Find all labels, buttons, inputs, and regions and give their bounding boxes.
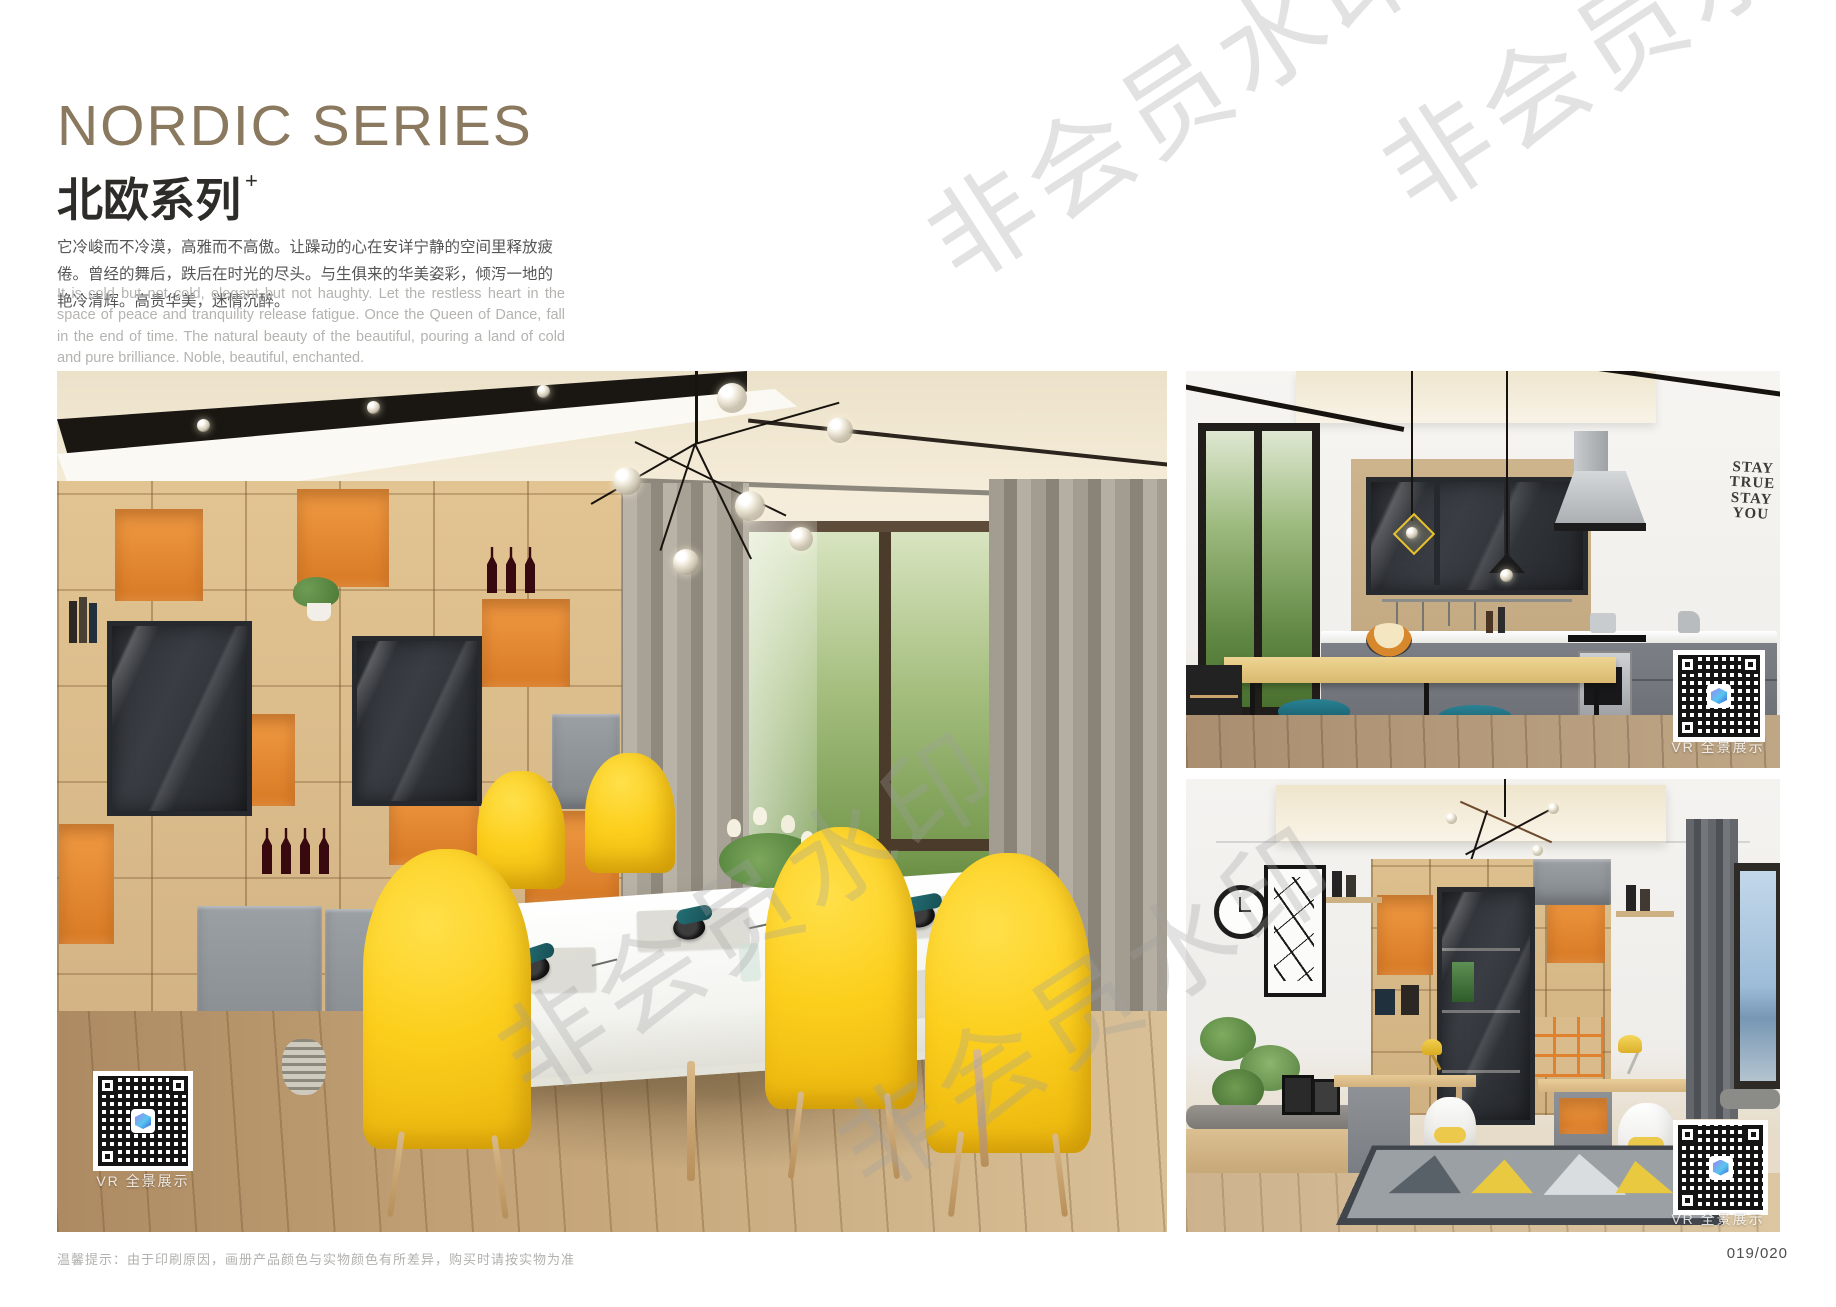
tulip [727,819,741,837]
shelf-board [1190,695,1238,698]
shelf-orange-cell [59,824,114,944]
book [1346,875,1356,897]
footer-disclaimer: 温馨提示：由于印刷原因，画册产品颜色与实物颜色有所差异，购买时请按实物为准 [57,1249,575,1268]
chandelier-arm [695,402,840,445]
decal-line: YOU [1724,506,1777,524]
watermark-text: 非会员水印 [893,0,1455,312]
page-title: NORDIC SERIES [57,98,533,155]
study-window-view [1740,871,1776,1081]
page-number: 019/020 [1727,1245,1788,1262]
desk-lamp [1616,1035,1650,1069]
kettle [1678,611,1700,633]
chandelier-stem [695,371,698,443]
book [79,597,87,643]
spotlight [367,401,380,414]
chandelier-bulb [789,527,813,551]
glass-display-cabinet [1437,887,1535,1125]
book [1640,889,1650,911]
fruit-bowl [1366,623,1412,657]
cabinet-art [1452,962,1474,1002]
pendant-cord [1506,371,1508,557]
spotlight [537,385,550,398]
page-subtitle: 北欧系列+ [57,170,258,223]
hanging-utensil [1422,602,1424,632]
gray-cabinet-door [1533,859,1611,905]
lamp-shade [1422,1039,1442,1055]
dining-room-photo: VR 全景展示 [57,371,1167,1232]
chandelier-bulb [717,383,747,413]
vr-panorama-label: VR 全景展示 [1668,1209,1768,1229]
book [1401,985,1419,1015]
pendant-bulb [1500,569,1513,582]
utensil-rail [1382,599,1572,602]
wine-bottles [262,828,329,874]
desk-left-top [1334,1075,1476,1087]
qr-eye [1744,1125,1763,1144]
qr-eye [98,1147,117,1166]
flower-vase [738,943,761,982]
qr-eye [1678,655,1697,674]
chandelier-arm [591,443,696,505]
gas-cooktop [1568,635,1646,642]
qr-eye [98,1076,117,1095]
desk-lamp [1422,1039,1452,1069]
abstract-art-frame [1264,865,1326,997]
tulip [781,815,795,833]
window-seat-cushion [1720,1089,1780,1109]
sputnik-chandelier [577,371,907,631]
qr-pattern [1678,1125,1763,1210]
glass-shelf [1442,1010,1520,1013]
subtitle-plus: + [245,168,258,193]
pendant-bulb [1406,527,1418,539]
dining-chair-near [363,849,531,1149]
floating-shelf [1616,911,1674,917]
glass-shelf [1442,948,1520,951]
description-english: It is cold but not cold, elegant but not… [57,284,565,370]
shelf-orange-cell [297,489,389,587]
vr-panorama-label: VR 全景展示 [87,1171,199,1191]
hood-duct [1574,431,1608,477]
qr-eye [1678,1125,1697,1144]
geometric-rug [1336,1145,1724,1225]
lamp-arm [1627,1050,1640,1075]
pedestal-orange-box [1559,1098,1607,1134]
qr-code [1673,650,1765,742]
qr-code [1673,1120,1768,1215]
bottle [1486,611,1493,633]
chandelier-stem [1504,779,1506,817]
shelf-orange-cell [115,509,203,601]
book [1332,871,1342,897]
book [89,603,97,643]
wall-clock [1214,885,1268,939]
desk-right-top [1538,1079,1708,1092]
orange-cubby-grid [1529,1017,1603,1077]
plant-pot [307,603,331,621]
chandelier-bulb [1446,813,1457,824]
rug-triangle [1542,1154,1626,1195]
book [69,601,77,643]
wine-bottles [487,547,535,593]
book [1626,885,1636,911]
qr-eye [1741,655,1760,674]
chandelier-bulb [1548,803,1559,814]
table-leg [687,1061,695,1181]
vr-panorama-label: VR 全景展示 [1668,737,1768,757]
kitchen-photo: STAY TRUE STAY YOU VR 全景展示 [1186,371,1780,768]
qr-pattern [1678,655,1760,737]
qr-eye [1678,1191,1697,1210]
chandelier-bulb [613,467,641,495]
study-room-photo: VR 全景展示 [1186,779,1780,1232]
chandelier-bulb [673,549,699,575]
art-scribbles [1274,877,1314,981]
rug-triangle [1389,1155,1468,1193]
dining-chair-near [925,853,1091,1153]
leaning-frame [1282,1075,1314,1115]
clock-hand [1239,910,1251,912]
wall-decal-stay-true: STAY TRUE STAY YOU [1724,460,1779,524]
hanging-utensil [1448,602,1450,626]
subtitle-text: 北欧系列 [57,174,241,226]
cooking-pot [1590,613,1616,633]
dining-chair-near [765,827,917,1109]
curtain-dark [1686,819,1738,1119]
tulip [753,807,767,825]
vr-cube-icon [131,1109,155,1133]
ceiling-recess [1296,371,1656,423]
glass-display-cabinet [107,621,252,816]
hood-base [1554,523,1646,531]
qr-eye [169,1076,188,1095]
dining-set [357,731,1137,1231]
dining-chair-far [585,753,675,873]
spotlight [197,419,210,432]
catalog-page: NORDIC SERIES 北欧系列+ 它冷峻而不冷漠，高雅而不高傲。让躁动的心… [0,0,1836,1307]
bench-base [1186,1129,1362,1173]
glass-shelf [1442,1070,1520,1073]
book [1375,989,1395,1015]
qr-code [93,1071,193,1171]
chandelier-bulb [1532,845,1543,856]
vr-cube-icon [1709,1156,1733,1180]
qr-eye [1678,718,1697,737]
watermark-text: 非会员水印 [1348,0,1836,242]
vr-cube-icon [1707,684,1731,708]
rug-triangle [1471,1159,1533,1193]
qr-pattern [98,1076,188,1166]
shelf-orange-cell [482,599,570,687]
hanging-utensil [1474,602,1476,630]
floating-shelf [1326,897,1382,903]
island-tabletop [1224,657,1616,683]
striped-jar [282,1039,326,1095]
bottle [1498,607,1505,633]
cabinet-mullion [1434,477,1440,585]
chair-cushion [1434,1127,1466,1143]
shelf-orange-cell [1377,895,1433,975]
chandelier-bulb [735,491,765,521]
pendant-cord [1411,371,1413,521]
chandelier-arm [1460,801,1552,844]
lamp-shade [1618,1035,1642,1053]
chandelier-bulb [827,417,853,443]
